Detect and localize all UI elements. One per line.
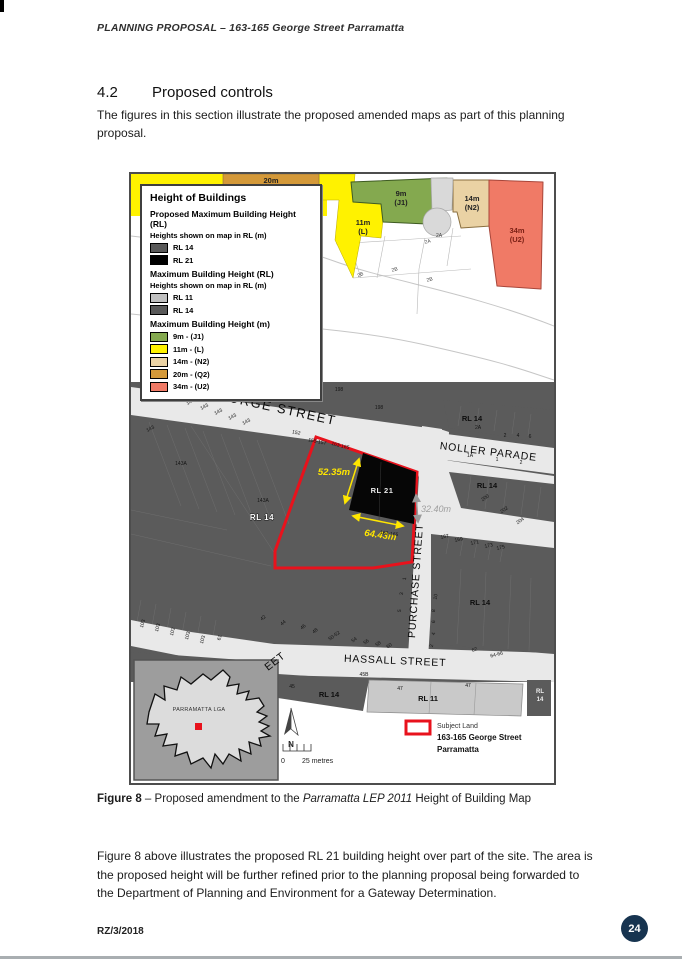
caption-text-1: – Proposed amendment to the (142, 793, 303, 805)
legend-swatch (150, 305, 168, 315)
map-label: 143A (175, 461, 187, 467)
map-label: 143A (257, 498, 269, 504)
map-label: 9m (396, 189, 407, 198)
section-heading: 4.2Proposed controls (97, 84, 273, 101)
map-label: RL 14 (470, 598, 491, 607)
legend-item: RL 21 (150, 255, 312, 265)
map-label: Subject Land (437, 723, 478, 730)
legend-label: RL 14 (173, 306, 193, 315)
legend-section-heading: Proposed Maximum Building Height (RL) (150, 209, 312, 229)
map-legend: Height of Buildings Proposed Maximum Bui… (140, 184, 322, 401)
map-label: 47 (465, 683, 471, 689)
legend-item: 14m - (N2) (150, 357, 312, 367)
page-corner-mark (0, 0, 4, 12)
legend-item: RL 14 (150, 305, 312, 315)
legend-label: RL 11 (173, 293, 193, 302)
body-paragraph: Figure 8 above illustrates the proposed … (97, 847, 597, 903)
legend-label: 34m - (U2) (173, 382, 209, 391)
map-label: 1 (496, 457, 499, 463)
document-page: PLANNING PROPOSAL – 163-165 George Stree… (0, 0, 682, 966)
map-label: 47 (397, 686, 403, 692)
locality-inset (134, 660, 278, 780)
map-label: PARRAMATTA LGA (173, 707, 226, 713)
map-label: (N2) (465, 203, 480, 212)
map-label: 34m (509, 226, 524, 235)
legend-item: 20m - (Q2) (150, 369, 312, 379)
map-label: 0 (281, 758, 285, 765)
map-label: 45 (289, 684, 295, 690)
legend-item: 11m - (L) (150, 344, 312, 354)
map-label: RL 14 (250, 513, 274, 522)
map-label: 32.40m (421, 504, 452, 514)
footer-reference: RZ/3/2018 (97, 926, 144, 937)
map-label: 1A (467, 453, 474, 459)
map-label: (J1) (394, 198, 408, 207)
legend-section-heading: Maximum Building Height (m) (150, 319, 312, 329)
map-label: RL (536, 689, 544, 695)
legend-swatch (150, 293, 168, 303)
legend-swatch (150, 382, 168, 392)
map-label: RL 14 (319, 690, 340, 699)
legend-items: Proposed Maximum Building Height (RL)Hei… (150, 209, 312, 392)
header-title: PLANNING PROPOSAL – 163-165 George Stree… (97, 22, 404, 34)
map-label: 163-165 George Street (437, 733, 522, 742)
map-label: Parramatta (437, 745, 479, 754)
legend-subheading: Heights shown on map in RL (m) (150, 231, 312, 240)
figure-caption: Figure 8 – Proposed amendment to the Par… (97, 793, 597, 805)
map-label: 45B (360, 672, 370, 678)
legend-label: 9m - (J1) (173, 332, 204, 341)
legend-swatch (150, 357, 168, 367)
footer-rule (0, 956, 682, 959)
legend-label: 11m - (L) (173, 345, 204, 354)
legend-label: RL 14 (173, 243, 193, 252)
figure-map: GEORGE STREETNOLLER PARADEPURCHASE STREE… (129, 172, 556, 785)
legend-label: RL 21 (173, 256, 193, 265)
legend-item: RL 14 (150, 243, 312, 253)
map-label: 11m (356, 218, 371, 227)
map-label: RL 11 (418, 694, 438, 703)
caption-italic: Parramatta LEP 2011 (303, 793, 412, 805)
map-label: 14m (464, 194, 479, 203)
site-marker (195, 723, 202, 730)
map-label: 2A (475, 425, 482, 431)
legend-title: Height of Buildings (150, 192, 312, 204)
map-label: 25 metres (302, 758, 334, 765)
map-label: 2 (504, 433, 507, 439)
page-number: 24 (628, 923, 640, 935)
map-label: 14 (537, 697, 544, 703)
legend-item: RL 11 (150, 293, 312, 303)
map-label: RL 14 (477, 481, 498, 490)
legend-section-heading: Maximum Building Height (RL) (150, 269, 312, 279)
legend-swatch (150, 243, 168, 253)
map-label: 52.35m (318, 467, 351, 478)
map-label: 4 (517, 433, 520, 439)
legend-swatch (150, 255, 168, 265)
map-label: 198 (335, 387, 344, 393)
figure-number: Figure 8 (97, 793, 142, 805)
intro-paragraph: The figures in this section illustrate t… (97, 106, 597, 142)
map-label: 2 (520, 460, 523, 466)
legend-swatch (150, 344, 168, 354)
page-number-badge: 24 (621, 915, 648, 942)
caption-text-2: Height of Building Map (412, 793, 531, 805)
map-label: RL 21 (371, 486, 394, 495)
map-label: (U2) (510, 235, 525, 244)
legend-label: 20m - (Q2) (173, 370, 210, 379)
map-label: 198 (375, 405, 384, 411)
map-label: (L) (358, 227, 368, 236)
section-number: 4.2 (97, 84, 152, 101)
legend-subheading: Heights shown on map in RL (m) (150, 281, 312, 290)
legend-item: 9m - (J1) (150, 332, 312, 342)
legend-swatch (150, 369, 168, 379)
legend-label: 14m - (N2) (173, 357, 209, 366)
map-label: N (288, 740, 294, 749)
legend-item: 34m - (U2) (150, 382, 312, 392)
map-label: RL 14 (462, 414, 483, 423)
subject-land-key-swatch (406, 721, 430, 734)
map-label: 6 (529, 434, 532, 440)
map-label: 2A (436, 233, 443, 239)
section-title: Proposed controls (152, 84, 273, 101)
legend-swatch (150, 332, 168, 342)
rl11-band (367, 680, 523, 716)
